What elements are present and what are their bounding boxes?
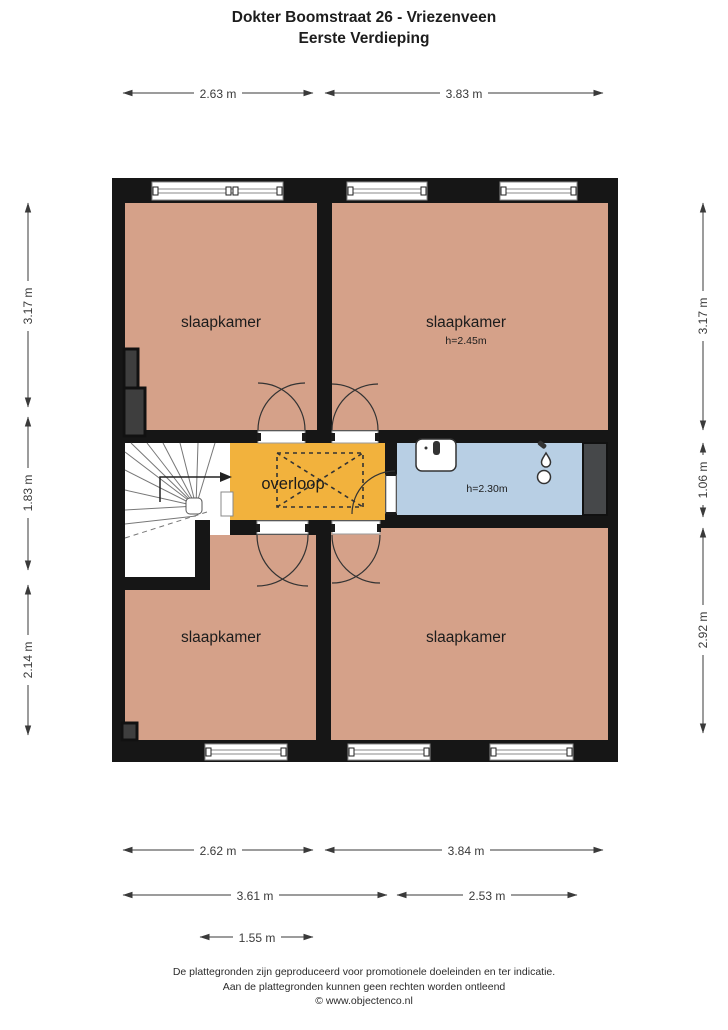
dimension-left-2: 1.83 m [21, 417, 35, 570]
stair-newel [186, 498, 202, 514]
dimension-top-left: 2.63 m [123, 86, 313, 101]
windows-top [152, 182, 577, 200]
dimension-bottom2-right: 2.53 m [397, 888, 577, 903]
svg-text:3.83 m: 3.83 m [446, 87, 483, 101]
room-label-bedroom-bottom-left: slaapkamer [181, 629, 261, 646]
disclaimer-line-3: © www.objectenco.nl [0, 994, 728, 1009]
dimension-right-2: 1.06 m [696, 443, 710, 517]
dimension-bottom2-left: 3.61 m [123, 888, 387, 903]
svg-text:2.53 m: 2.53 m [469, 889, 506, 903]
window [500, 182, 577, 200]
faucet-icon [433, 441, 440, 455]
dimension-left-1: 3.17 m [21, 203, 35, 407]
windows-bottom [205, 744, 573, 760]
window [490, 744, 573, 760]
dimension-bottom1-right: 3.84 m [325, 843, 603, 858]
dimension-top-right: 3.83 m [325, 86, 603, 101]
bathroom-duct [583, 443, 607, 515]
window [152, 182, 283, 200]
disclaimer: De plattegronden zijn geproduceerd voor … [0, 965, 728, 1009]
window [347, 182, 427, 200]
window [205, 744, 287, 760]
room-label-bedroom-top-right: slaapkamer [426, 314, 506, 331]
ceiling-height-bedroom-top-right: h=2.45m [445, 335, 486, 347]
dimension-bottom1-left: 2.62 m [123, 843, 313, 858]
svg-text:3.61 m: 3.61 m [237, 889, 274, 903]
svg-text:3.17 m: 3.17 m [696, 298, 710, 335]
room-label-landing: overloop [261, 475, 324, 493]
stairwell-side-wall [195, 520, 210, 590]
svg-text:1.55 m: 1.55 m [239, 931, 276, 945]
svg-text:1.83 m: 1.83 m [21, 475, 35, 512]
window [348, 744, 430, 760]
disclaimer-line-1: De plattegronden zijn geproduceerd voor … [0, 965, 728, 980]
dimension-bottom3: 1.55 m [200, 930, 313, 945]
room-label-bedroom-top-left: slaapkamer [181, 314, 261, 331]
svg-text:2.14 m: 2.14 m [21, 642, 35, 679]
sink [416, 439, 456, 471]
dimension-left-3: 2.14 m [21, 585, 35, 735]
dimension-right-1: 3.17 m [696, 203, 710, 430]
room-label-bedroom-bottom-right: slaapkamer [426, 629, 506, 646]
stair-top-step [221, 492, 233, 516]
svg-text:2.62 m: 2.62 m [200, 844, 237, 858]
corner-duct [122, 723, 137, 740]
ceiling-height-bathroom: h=2.30m [466, 483, 507, 495]
svg-text:3.84 m: 3.84 m [448, 844, 485, 858]
svg-text:1.06 m: 1.06 m [696, 462, 710, 499]
disclaimer-line-2: Aan de plattegronden kunnen geen rechten… [0, 980, 728, 995]
floor-plan: 2.63 m 3.83 m 3.17 m 1.83 m 2.14 m 3.17 [0, 0, 728, 1030]
shower-drain-icon [538, 471, 551, 484]
dimension-right-3: 2.92 m [696, 528, 710, 733]
svg-text:2.63 m: 2.63 m [200, 87, 237, 101]
svg-text:2.92 m: 2.92 m [696, 612, 710, 649]
svg-text:3.17 m: 3.17 m [21, 288, 35, 325]
